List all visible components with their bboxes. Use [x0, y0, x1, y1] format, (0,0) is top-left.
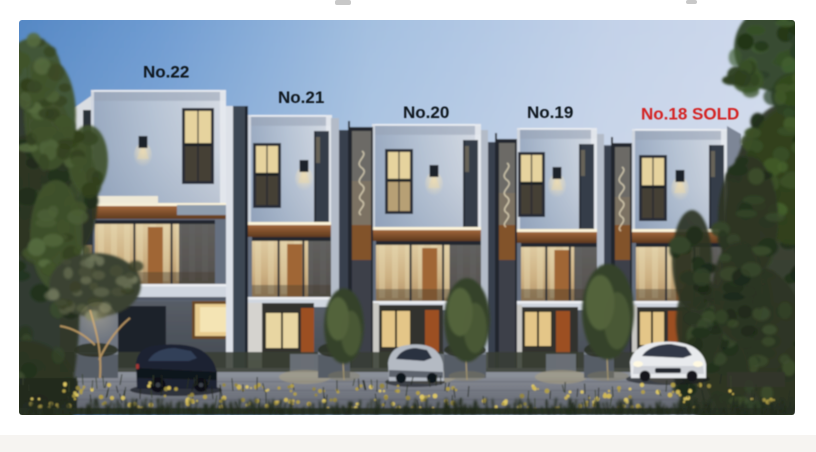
svg-text:No.19: No.19 — [527, 103, 573, 122]
svg-text:No.18 SOLD: No.18 SOLD — [641, 105, 739, 124]
svg-text:No.20: No.20 — [403, 103, 449, 122]
svg-text:No.21: No.21 — [278, 88, 324, 107]
svg-text:No.22: No.22 — [143, 63, 189, 82]
